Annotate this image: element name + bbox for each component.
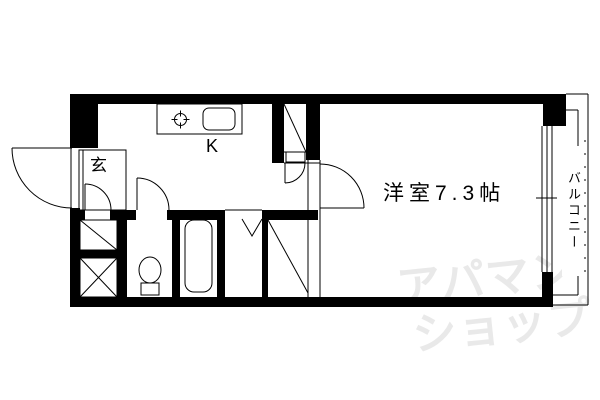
storage-strip-door-arc [85,184,111,210]
wall-corner-top-right [543,94,566,126]
upper-closet [284,104,306,162]
balcony-window [536,126,557,272]
balcony-label: バルコニー [562,146,583,276]
wall-divider-v1 [117,220,127,297]
pipe-space-square [80,258,117,297]
stove-burner-icon [172,111,190,129]
wall-mid-h2 [110,210,136,220]
wall-left-lower [70,208,80,307]
floorplan-drawing [0,0,600,400]
wall-bottom [70,297,553,307]
wall-divider-v4 [262,220,268,297]
toilet-icon [139,257,161,295]
washer-space-v-mark [225,210,262,236]
wall-left-upper-block [70,94,98,148]
wall-below-window [542,272,553,307]
wall-kitchen-right-bar [272,104,284,163]
upper-closet-door-arc [284,163,320,183]
wall-mid-h1 [70,210,85,220]
wall-divider-v2 [172,220,180,297]
wall-divider-v3 [217,220,225,297]
western-room-label: 洋室7.3帖 [383,177,505,207]
toilet-door-arc [137,178,169,210]
wall-mid-h3 [167,210,225,220]
bathtub-icon [185,220,212,292]
wall-top [70,94,566,104]
floorplan-canvas: アパマン ショップ [0,0,600,400]
wall-closet-strip-divider [80,250,117,258]
genkan-label: 玄 [90,151,107,176]
kitchen-sink-icon [203,108,235,130]
wall-closet-right-bar [306,104,320,160]
kitchen-label: K [206,136,218,157]
shoe-closet-square [80,220,117,250]
room-door-arc [320,164,364,208]
wall-mid-h4 [262,210,318,220]
entry-door-arc [12,148,72,208]
